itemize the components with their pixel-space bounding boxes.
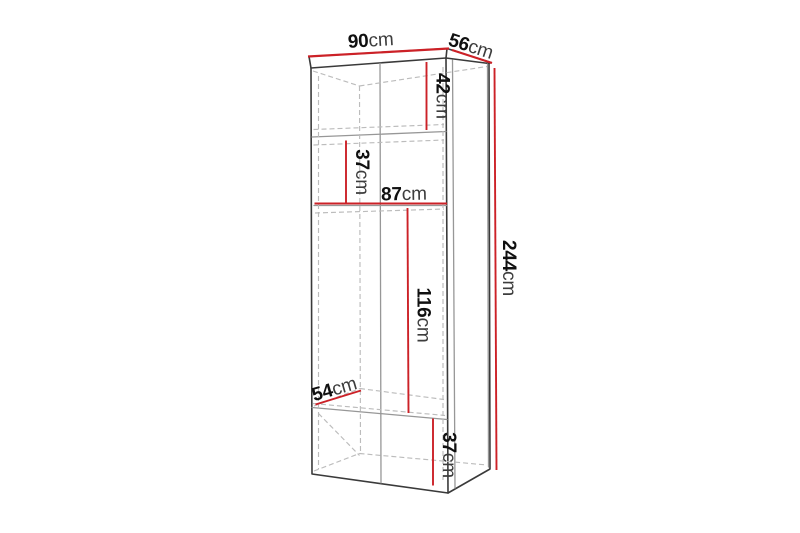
cabinet-outline bbox=[309, 49, 491, 494]
top-shelf-back-lower-edge bbox=[314, 140, 445, 145]
top-shelf bbox=[312, 132, 446, 138]
side-panel-back-edge bbox=[488, 64, 489, 467]
bottom-section-label: 37cm bbox=[438, 432, 459, 478]
cabinet-inner-edges bbox=[312, 60, 489, 488]
top-shelf-back-upper-edge bbox=[314, 125, 445, 130]
top-left-depth-hidden-edge bbox=[313, 71, 360, 86]
dimension-lines bbox=[308, 49, 497, 486]
middle-section-label: 116cm bbox=[413, 288, 434, 343]
side-panel-front-edge bbox=[453, 60, 456, 488]
hidden-edges bbox=[313, 67, 487, 484]
middle-section-dimension-line bbox=[408, 208, 409, 413]
back-top-hidden-edge bbox=[360, 67, 488, 87]
width-label: 90cm bbox=[347, 29, 394, 53]
top-panel-left-corner bbox=[309, 57, 311, 69]
second-shelf-back-edge bbox=[315, 209, 444, 213]
inner-depth-label: 54cm bbox=[310, 373, 360, 406]
top-section-label: 42cm bbox=[432, 73, 453, 119]
total-height-dimension-line bbox=[495, 68, 497, 470]
floor-back-hidden-edge bbox=[360, 454, 488, 466]
bottom-shelf-rear-edge bbox=[360, 389, 444, 400]
wardrobe-dimension-diagram: 90cm 56cm 42cm 37cm 87cm 116cm 244cm 54c… bbox=[0, 0, 800, 533]
upper-shelf-label: 37cm bbox=[351, 149, 372, 195]
total-height-label: 244cm bbox=[498, 240, 519, 296]
inner-width-label: 87cm bbox=[381, 184, 427, 206]
back-left-hidden-edge bbox=[360, 86, 361, 454]
floor-depth-hidden-edge bbox=[314, 454, 360, 472]
diagram-canvas: 90cm 56cm 42cm 37cm 87cm 116cm 244cm 54c… bbox=[0, 0, 800, 533]
lower-compartment-diagonal-edge bbox=[319, 414, 360, 456]
